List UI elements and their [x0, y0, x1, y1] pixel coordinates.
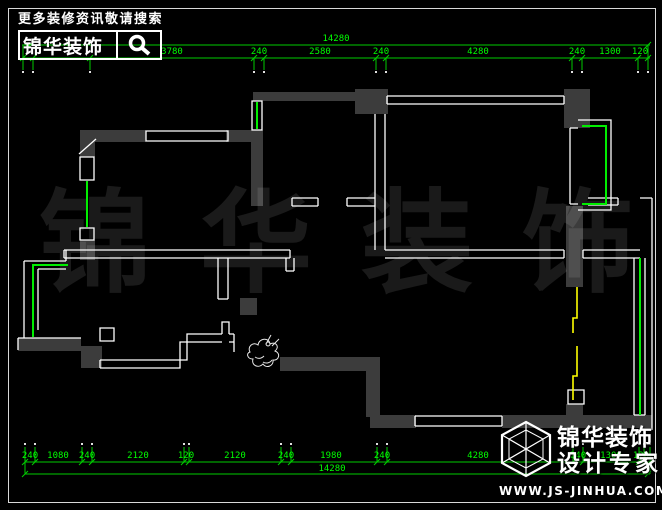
brand-box: 锦华装饰 [18, 30, 162, 60]
footer-logo: 锦华装饰 设计专家 WWW.JS-JINHUA.COM [499, 420, 659, 498]
header-logo: 更多装修资讯敬请搜索 锦华装饰 [18, 8, 163, 60]
watermark-char: 装 [361, 178, 473, 309]
watermark: 锦 华 装 饰 [39, 178, 634, 309]
search-hint: 更多装修资讯敬请搜索 [18, 8, 163, 27]
brand-name: 锦华装饰 [20, 32, 116, 59]
floorplan-canvas: 锦 华 装 饰 [0, 0, 662, 510]
wireframe-cube-icon [499, 420, 553, 482]
watermark-char: 锦 [39, 178, 151, 309]
magnifier-icon [116, 32, 160, 58]
top-window-wall [387, 96, 564, 104]
footer-website: WWW.JS-JINHUA.COM [499, 484, 659, 498]
footer-tagline: 设计专家 [557, 451, 661, 477]
doodle-sketch [248, 335, 279, 367]
footer-brand: 锦华装饰 [557, 425, 661, 451]
